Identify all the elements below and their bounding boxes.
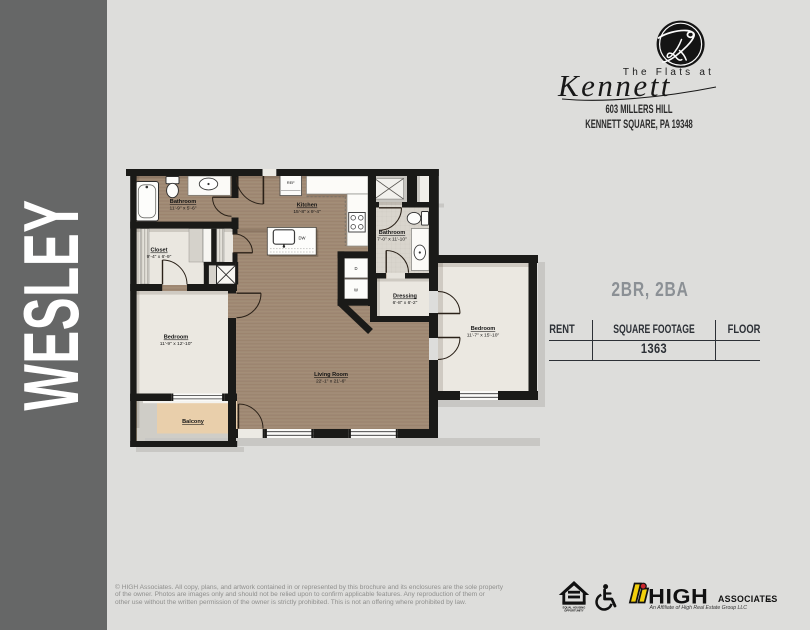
svg-text:15'-8" x 9'-4": 15'-8" x 9'-4" (293, 209, 321, 215)
svg-text:9'-4" x 6'-9": 9'-4" x 6'-9" (147, 254, 172, 260)
svg-text:Balcony: Balcony (182, 419, 205, 425)
svg-text:OPPORTUNITY: OPPORTUNITY (564, 609, 584, 613)
svg-text:7'-0" x 11'-10": 7'-0" x 11'-10" (377, 236, 407, 242)
svg-text:Dressing: Dressing (393, 294, 418, 300)
svg-text:Bedroom: Bedroom (471, 326, 496, 332)
svg-text:D: D (354, 266, 357, 271)
svg-text:Living Room: Living Room (314, 372, 348, 378)
svg-text:11'-9" x 5'-6": 11'-9" x 5'-6" (170, 205, 197, 211)
svg-text:Kitchen: Kitchen (297, 203, 318, 209)
svg-text:6'-8" x 6'-2": 6'-8" x 6'-2" (393, 300, 418, 306)
svg-text:11'-7" x 15'-10": 11'-7" x 15'-10" (467, 332, 500, 338)
svg-text:Bedroom: Bedroom (164, 335, 189, 341)
svg-text:REF: REF (287, 180, 296, 185)
svg-text:W: W (354, 288, 358, 293)
svg-text:DW: DW (299, 236, 306, 241)
svg-text:LTD.: LTD. (766, 599, 773, 603)
svg-text:11'-9" x 12'-10": 11'-9" x 12'-10" (160, 341, 193, 347)
svg-text:Bathroom: Bathroom (170, 199, 196, 205)
svg-text:22'-1" x 21'-6": 22'-1" x 21'-6" (316, 378, 346, 384)
svg-text:Closet: Closet (150, 248, 167, 254)
svg-text:An Affiliate of High Real Esta: An Affiliate of High Real Estate Group L… (649, 605, 748, 611)
svg-text:Bathroom: Bathroom (379, 230, 405, 236)
